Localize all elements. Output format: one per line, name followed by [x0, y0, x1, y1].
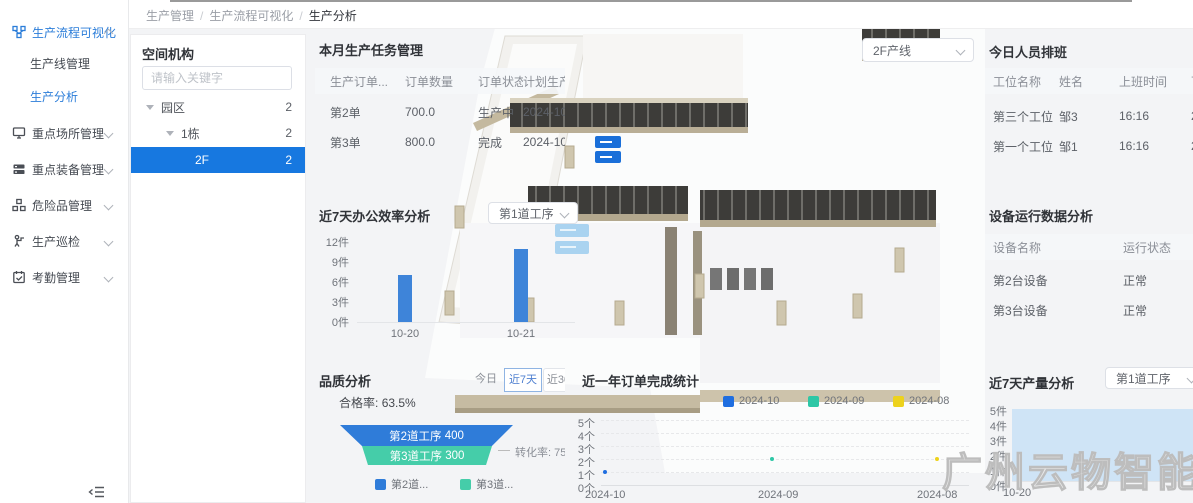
column-header: 订单状态: [478, 73, 523, 90]
tree-node-label: 2F: [195, 153, 209, 167]
legend-label: 2024-08: [909, 395, 949, 407]
grid-line: [601, 485, 969, 486]
quality-panel: 品质分析 今日 近7天 近30天 合格率: 63.5% 第2道工序 400 第3…: [315, 365, 565, 503]
sidebar-item-key-equipment[interactable]: 重点装备管理: [0, 158, 128, 180]
tree-node-count: 2: [285, 153, 292, 167]
panel-title: 品质分析: [319, 371, 371, 390]
y-axis-tick: 3件: [315, 294, 349, 310]
grid-line: [601, 433, 969, 434]
flow-icon: [12, 25, 26, 39]
grid-line: [601, 420, 969, 421]
cell-station: 第一个工位: [993, 138, 1059, 155]
column-header: 生产订单...: [330, 73, 405, 90]
chevron-down-icon: [104, 236, 114, 246]
data-point: [770, 457, 774, 461]
column-header: 上班时间: [1119, 73, 1191, 90]
sidebar-item-key-places[interactable]: 重点场所管理: [0, 122, 128, 144]
x-axis-tick: 10-21: [505, 328, 537, 340]
schedule-panel: 今日人员排班 工位名称 姓名 上班时间 下班时间 第三个工位 邹3 16:16 …: [985, 36, 1193, 176]
conversion-label: 转化率:: [515, 447, 551, 459]
legend-item[interactable]: 2024-10: [723, 395, 779, 407]
table-row[interactable]: 第2单 700.0 生产中 2024-10-22...: [315, 102, 565, 122]
chevron-down-icon: [104, 128, 114, 138]
funnel-stage-label: 第2道工序: [389, 428, 441, 444]
table-row[interactable]: 第一个工位 邹1 16:16 2024-10-22: [985, 136, 1193, 156]
tree-node-campus[interactable]: 园区 2: [131, 95, 305, 119]
legend-item[interactable]: 2024-09: [808, 395, 864, 407]
y-axis-tick: 9件: [315, 254, 349, 270]
cell-plan-date: 2024-10-22...: [523, 135, 565, 149]
tree-node-floor-selected[interactable]: 2F 2: [131, 147, 305, 173]
data-point: [603, 470, 607, 474]
breadcrumb-bar: 生产管理/生产流程可视化/生产分析: [128, 0, 1193, 29]
panel-title: 设备运行数据分析: [989, 206, 1093, 225]
cell-status: 生产中: [478, 104, 523, 121]
tree-node-count: 2: [285, 126, 292, 140]
column-header: 姓名: [1059, 73, 1119, 90]
sidebar-item-label: 生产巡检: [32, 233, 80, 250]
sidebar-item-process-visualization[interactable]: 生产流程可视化: [0, 21, 128, 43]
tree-node-count: 2: [285, 100, 292, 114]
tree-node-label: 园区: [161, 99, 185, 116]
monthly-tasks-panel: 本月生产任务管理 生产订单... 订单数量 订单状态 计划生产... 第2单 7…: [315, 36, 565, 168]
sidebar-item-production-line[interactable]: 生产线管理: [0, 55, 90, 73]
cell-quantity: 700.0: [405, 105, 478, 119]
grid-line: [601, 446, 969, 447]
y-axis-tick: 4件: [985, 418, 1007, 434]
conversion-rate: 转化率: 75.00: [515, 444, 565, 460]
collapse-sidebar-icon[interactable]: [88, 485, 106, 499]
table-row[interactable]: 第2台设备 正常: [985, 270, 1193, 290]
sidebar-subitem-label: 生产线管理: [30, 57, 90, 71]
pass-rate-label: 合格率:: [339, 396, 378, 410]
monitor-icon: [12, 126, 26, 140]
chevron-down-icon: [104, 272, 114, 282]
grid-line: [601, 459, 969, 460]
x-axis-line: [357, 322, 575, 323]
legend-label: 2024-10: [739, 395, 779, 407]
legend-swatch: [808, 396, 819, 407]
chevron-down-icon: [956, 45, 966, 55]
column-header: 订单数量: [405, 73, 478, 90]
legend-label: 2024-09: [824, 395, 864, 407]
breadcrumb: 生产管理/生产流程可视化/生产分析: [146, 7, 357, 24]
x-axis-tick: 10-20: [389, 328, 421, 340]
caret-down-icon: [146, 105, 154, 110]
y-axis-tick: 5件: [985, 403, 1007, 419]
range-button-today[interactable]: 今日: [471, 368, 501, 390]
panel-title: 今日人员排班: [989, 42, 1067, 61]
cell-station: 第三个工位: [993, 108, 1059, 125]
breadcrumb-item[interactable]: 生产流程可视化: [209, 9, 293, 23]
panel-title: 空间机构: [142, 44, 194, 63]
cell-device: 第3台设备: [993, 302, 1123, 319]
funnel-stage-label: 第3道工序: [390, 448, 442, 464]
funnel-stage-1[interactable]: 第2道工序 400: [340, 425, 513, 446]
sidebar-item-hazardous-materials[interactable]: 危险品管理: [0, 194, 128, 216]
legend-swatch: [723, 396, 734, 407]
cell-status: 完成: [478, 134, 523, 151]
line-chart: 2024-102024-092024-085个4个3个2个1个0个2024-10…: [565, 365, 975, 503]
tree-node-building[interactable]: 1栋 2: [131, 121, 305, 145]
hazard-icon: [12, 198, 26, 212]
production-line-select[interactable]: 2F产线: [862, 38, 974, 62]
cell-status: 正常: [1123, 302, 1193, 319]
sidebar-subitem-label: 生产分析: [30, 90, 78, 104]
bar-series: [398, 275, 412, 322]
x-axis-tick: 2024-09: [758, 489, 798, 501]
sidebar: 生产流程可视化 生产线管理 生产分析 重点场所管理 重点装备管理 危险品管理: [0, 0, 129, 503]
sidebar-item-label: 考勤管理: [32, 269, 80, 286]
funnel-stage-value: 400: [445, 430, 464, 442]
chevron-down-icon: [104, 200, 114, 210]
legend-item[interactable]: 第3道...: [460, 476, 513, 492]
x-axis-tick: 2024-10: [585, 489, 625, 501]
table-row[interactable]: 第3台设备 正常: [985, 300, 1193, 320]
cell-name: 邹3: [1059, 108, 1119, 125]
search-input[interactable]: [142, 66, 292, 90]
legend-item[interactable]: 第2道...: [375, 476, 428, 492]
equipment-icon: [12, 162, 26, 176]
vendor-watermark: 广州云物智能: [942, 440, 1193, 498]
cell-order: 第3单: [330, 134, 405, 151]
cell-quantity: 800.0: [405, 135, 478, 149]
panel-title: 本月生产任务管理: [319, 40, 423, 59]
legend-label: 第2道...: [391, 476, 428, 492]
cell-name: 邹1: [1059, 138, 1119, 155]
sidebar-item-attendance[interactable]: 考勤管理: [0, 266, 128, 288]
legend-swatch: [375, 479, 386, 490]
cell-status: 正常: [1123, 272, 1193, 289]
cell-start-time: 16:16: [1119, 109, 1191, 123]
legend-item[interactable]: 2024-08: [893, 395, 949, 407]
column-header: 运行状态: [1123, 239, 1193, 256]
cell-plan-date: 2024-10-22...: [523, 105, 565, 119]
bar-chart: 12件9件6件3件0件10-2010-21: [315, 200, 580, 340]
sidebar-item-production-patrol[interactable]: 生产巡检: [0, 230, 128, 252]
range-button-7days[interactable]: 近7天: [504, 368, 542, 392]
table-row[interactable]: 第3单 800.0 完成 2024-10-22...: [315, 132, 565, 152]
legend-swatch: [893, 396, 904, 407]
table-header: 设备名称 运行状态: [985, 234, 1193, 260]
range-button-30days[interactable]: 近30天: [543, 368, 565, 392]
y-axis-tick: 0件: [315, 314, 349, 330]
breadcrumb-item[interactable]: 生产管理: [146, 9, 194, 23]
breadcrumb-separator: /: [299, 9, 302, 23]
bar-series: [514, 249, 528, 322]
tree-node-label: 1栋: [181, 125, 200, 142]
column-header: 设备名称: [993, 239, 1123, 256]
y-axis-tick: 6件: [315, 274, 349, 290]
conversion-value: 75.00: [554, 447, 565, 459]
data-point: [935, 457, 939, 461]
space-organization-panel: 空间机构 园区 2 1栋 2 2F 2: [130, 34, 306, 503]
chevron-down-icon: [104, 164, 114, 174]
breadcrumb-separator: /: [200, 9, 203, 23]
efficiency-panel: 近7天办公效率分析 第1道工序 12件9件6件3件0件10-2010-21: [315, 200, 580, 340]
conversion-connector: [498, 450, 510, 451]
sidebar-item-label: 重点场所管理: [32, 125, 104, 142]
sidebar-item-production-analysis[interactable]: 生产分析: [0, 88, 78, 106]
breadcrumb-current: 生产分析: [309, 9, 357, 23]
funnel-stage-2[interactable]: 第3道工序 300: [362, 446, 492, 465]
caret-down-icon: [166, 131, 174, 136]
orders-panel: 近一年订单完成统计 2024-102024-092024-085个4个3个2个1…: [565, 365, 975, 503]
pass-rate: 合格率: 63.5%: [339, 394, 416, 411]
cell-order: 第2单: [330, 104, 405, 121]
column-header: 计划生产...: [523, 73, 565, 90]
top-edge-shadow: [170, 0, 1132, 2]
column-header: 工位名称: [993, 73, 1059, 90]
patrol-icon: [12, 234, 26, 248]
funnel-stage-value: 300: [445, 450, 464, 462]
table-row[interactable]: 第三个工位 邹3 16:16 2024-10-22: [985, 106, 1193, 126]
grid-line: [601, 472, 969, 473]
pass-rate-value: 63.5%: [382, 396, 416, 410]
equipment-panel: 设备运行数据分析 设备名称 运行状态 第2台设备 正常 第3台设备 正常: [985, 200, 1193, 330]
sidebar-item-label: 重点装备管理: [32, 161, 104, 178]
cell-device: 第2台设备: [993, 272, 1123, 289]
y-axis-tick: 12件: [315, 234, 349, 250]
cell-start-time: 16:16: [1119, 139, 1191, 153]
table-header: 生产订单... 订单数量 订单状态 计划生产...: [315, 68, 565, 94]
table-header: 工位名称 姓名 上班时间 下班时间: [985, 68, 1193, 94]
legend-label: 第3道...: [476, 476, 513, 492]
attendance-icon: [12, 270, 26, 284]
sidebar-item-label: 危险品管理: [32, 197, 92, 214]
select-value: 2F产线: [873, 42, 957, 59]
legend-swatch: [460, 479, 471, 490]
